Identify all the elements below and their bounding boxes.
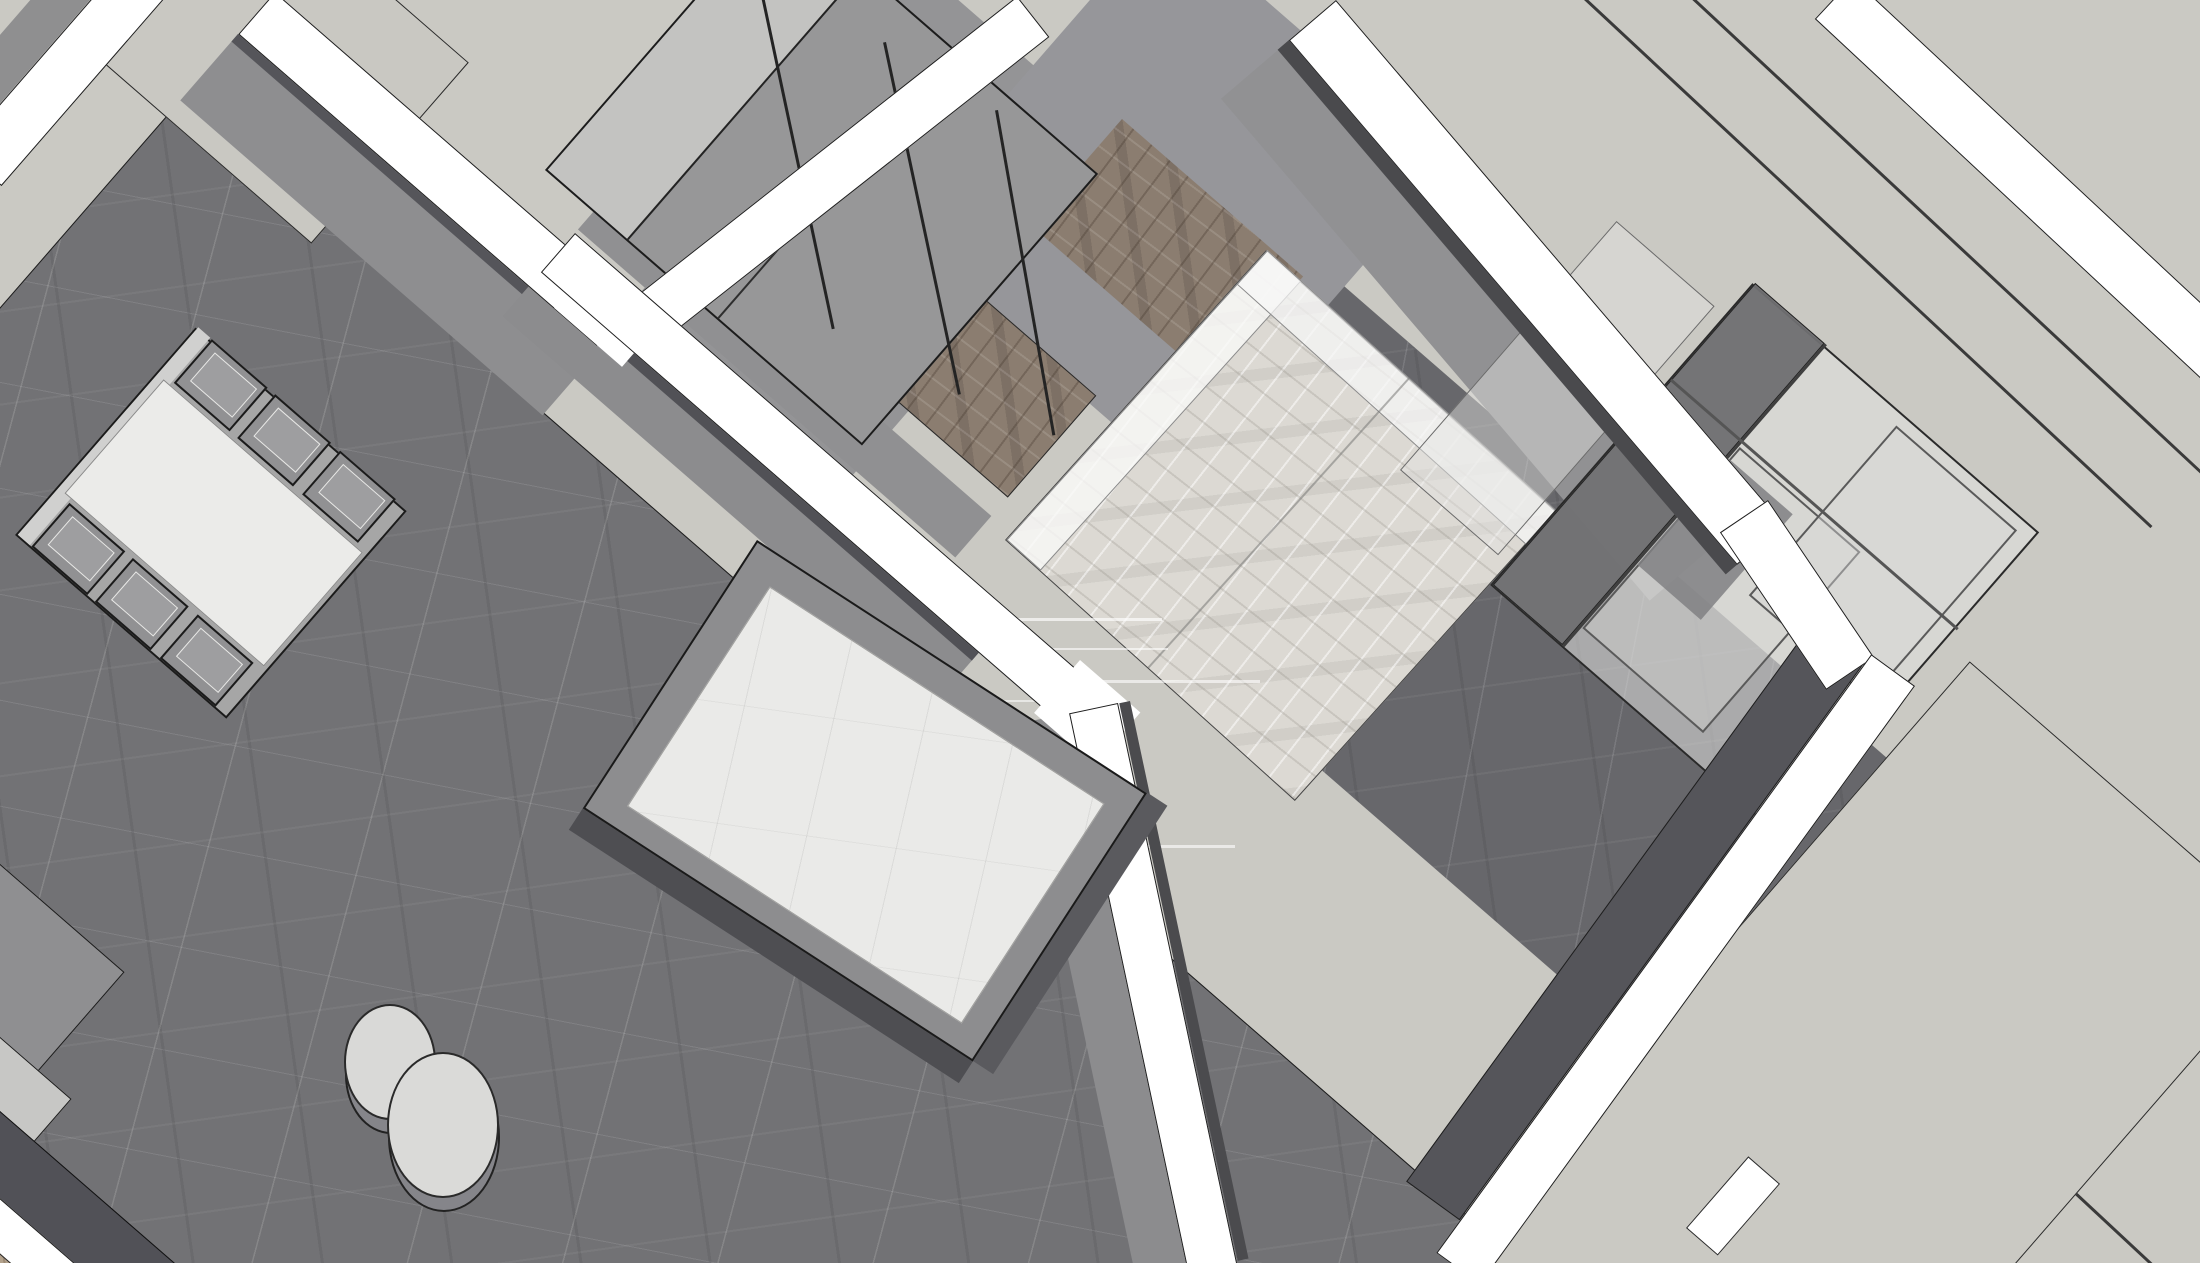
model-viewport[interactable] xyxy=(0,0,2200,1263)
glass-reflection-streak-2 xyxy=(1048,648,1168,650)
glass-seam-line xyxy=(1148,377,1410,668)
glass-reflection-streak-1 xyxy=(1012,618,1162,621)
stool-2[interactable] xyxy=(387,1052,499,1198)
glass-reflection-streak-3 xyxy=(1090,680,1260,683)
